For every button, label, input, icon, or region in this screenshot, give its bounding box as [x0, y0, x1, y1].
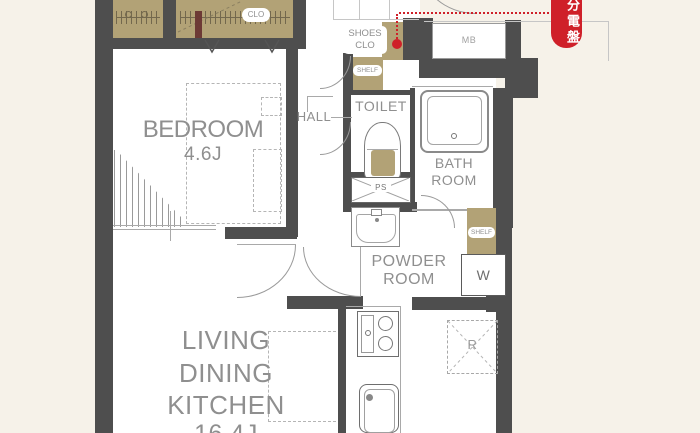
entry-tile-line: [389, 0, 390, 19]
ldk-label-line3: KITCHEN: [130, 392, 322, 419]
stove-icon: [357, 311, 399, 357]
wall-bath-right: [493, 88, 513, 228]
meter-box: MB: [432, 23, 506, 59]
ldk-label-line2: DINING: [130, 360, 322, 387]
wall-closet-divider: [163, 0, 176, 38]
hanger-hook-icon: [125, 11, 132, 18]
toilet-icon: [364, 122, 401, 179]
floor-plan: PS W MB R ENTRY BEDROOM 4.6J HALL TOILET…: [0, 0, 700, 433]
kitchen-sink-icon: [359, 384, 399, 433]
distribution-board-badge: 分電盤: [551, 0, 582, 48]
bathroom-label-line1: BATH: [420, 156, 488, 171]
door-fold-mark: [264, 40, 280, 54]
kitchen-faucet-dot: [366, 394, 373, 401]
door-fold-mark: [204, 40, 220, 54]
wall-below-mb: [419, 58, 538, 78]
red-dot: [392, 39, 402, 49]
partition-line: [113, 229, 216, 230]
meter-box-label: MB: [462, 36, 477, 45]
burner-knob: [365, 330, 371, 336]
burner-icon: [378, 336, 393, 351]
bath-top-line: [412, 86, 493, 87]
bathtub-icon: [420, 90, 489, 153]
powder-room-label-line2: ROOM: [352, 272, 466, 289]
bathtub-drain: [451, 133, 457, 139]
hall-leader-line: [331, 117, 352, 118]
entry-tile-line: [333, 19, 419, 20]
corridor-line-end: [608, 21, 609, 61]
shelf-lower-label: SHELF: [468, 227, 495, 238]
shelf-upper-label: SHELF: [353, 65, 382, 76]
entry-label: ENTRY: [352, 0, 414, 1]
furniture-outline-side: [261, 97, 282, 116]
closet-diagonal-line: [176, 0, 246, 34]
wall-shoes-right: [403, 18, 420, 60]
partition-line: [113, 225, 216, 226]
wall-kitchen-left: [338, 305, 346, 433]
wall-left: [95, 0, 113, 433]
ldk-size-label: 16.4J: [130, 421, 322, 433]
toilet-label: TOILET: [352, 99, 410, 114]
counter-edge-h: [346, 306, 400, 307]
hall-leader-line: [307, 96, 333, 97]
vanity-sink-icon: [351, 207, 400, 247]
entry-tile-line: [333, 0, 334, 19]
bathroom-label-line2: ROOM: [420, 173, 488, 188]
hanger-hook-icon: [141, 11, 148, 18]
wall-mb-left: [419, 18, 433, 60]
refrigerator-label: R: [447, 338, 498, 352]
wall-bottom-right: [496, 310, 512, 433]
wall-bedroom-bottom: [225, 227, 297, 239]
partition-tick: [170, 211, 171, 241]
shoes-closet-label-line1: SHOES: [343, 28, 387, 40]
pipe-space-label: PS: [371, 184, 391, 192]
wall-toilet-left: [343, 92, 351, 212]
faucet-icon: [371, 209, 382, 216]
powder-room-label-line1: POWDER: [352, 254, 466, 271]
entry-tile-line: [359, 0, 360, 19]
wall-powder-bottom: [412, 297, 496, 310]
faucet-dot: [375, 218, 379, 222]
bedroom-size-label: 4.6J: [118, 145, 288, 165]
toilet-base: [371, 150, 395, 176]
hall-label: HALL: [294, 110, 334, 124]
door-panel: [195, 11, 202, 38]
wall-mb-right: [505, 20, 521, 58]
wall-hall-ldk: [287, 296, 363, 309]
counter-edge-v: [400, 306, 401, 433]
washer-box: W: [461, 254, 506, 296]
closet-label: CLO: [242, 8, 270, 22]
wall-toilet-top: [351, 90, 411, 95]
shoes-closet-label-line2: CLO: [343, 40, 387, 52]
burner-icon: [378, 316, 393, 331]
shoes-closet-label: SHOES CLO: [343, 26, 387, 54]
distribution-board-text: 分電盤: [551, 0, 582, 46]
ldk-label-line1: LIVING: [130, 327, 322, 354]
hanger-rail-ticks: [116, 11, 160, 24]
red-dotted-line-v: [396, 14, 398, 42]
bedroom-label: BEDROOM: [118, 117, 288, 142]
washer-label: W: [477, 268, 491, 283]
powder-kitchen-opening: [363, 296, 412, 312]
red-dotted-line-h: [399, 12, 553, 14]
